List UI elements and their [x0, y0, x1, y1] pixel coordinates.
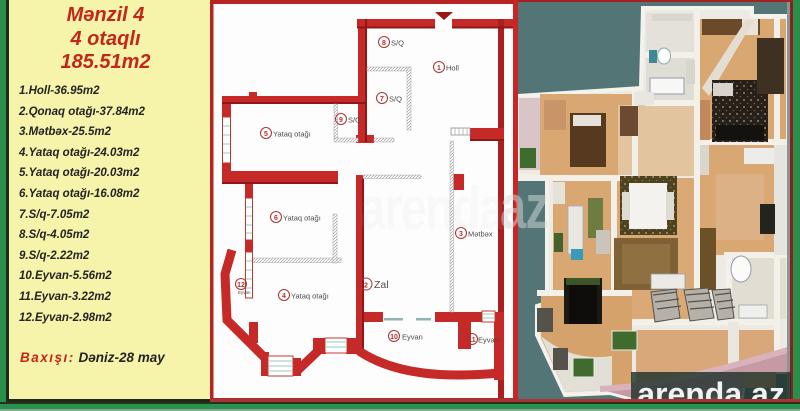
- svg-text:Eyvan: Eyvan: [402, 333, 423, 342]
- svg-text:11: 11: [468, 337, 476, 344]
- svg-text:S/Q: S/Q: [389, 95, 402, 104]
- svg-text:10: 10: [390, 334, 398, 341]
- svg-text:9: 9: [339, 117, 343, 124]
- svg-text:Eyvan: Eyvan: [478, 336, 499, 345]
- svg-text:Yataq otağı: Yataq otağı: [283, 214, 321, 223]
- svg-text:7: 7: [380, 96, 384, 103]
- svg-text:6: 6: [274, 215, 278, 222]
- svg-text:5: 5: [264, 131, 268, 138]
- svg-text:S/Q: S/Q: [391, 39, 404, 48]
- svg-text:2: 2: [364, 283, 368, 290]
- svg-text:Holl: Holl: [446, 64, 459, 73]
- svg-text:Eyvan: Eyvan: [238, 290, 251, 295]
- svg-text:Zal: Zal: [374, 279, 389, 291]
- svg-text:4: 4: [282, 293, 286, 300]
- svg-text:12: 12: [237, 282, 245, 289]
- svg-text:Yataq otağı: Yataq otağı: [291, 292, 329, 301]
- svg-text:S/Q: S/Q: [348, 116, 361, 125]
- svg-text:Yataq otağı: Yataq otağı: [273, 130, 311, 139]
- svg-text:1: 1: [437, 65, 441, 72]
- svg-text:8: 8: [382, 40, 386, 47]
